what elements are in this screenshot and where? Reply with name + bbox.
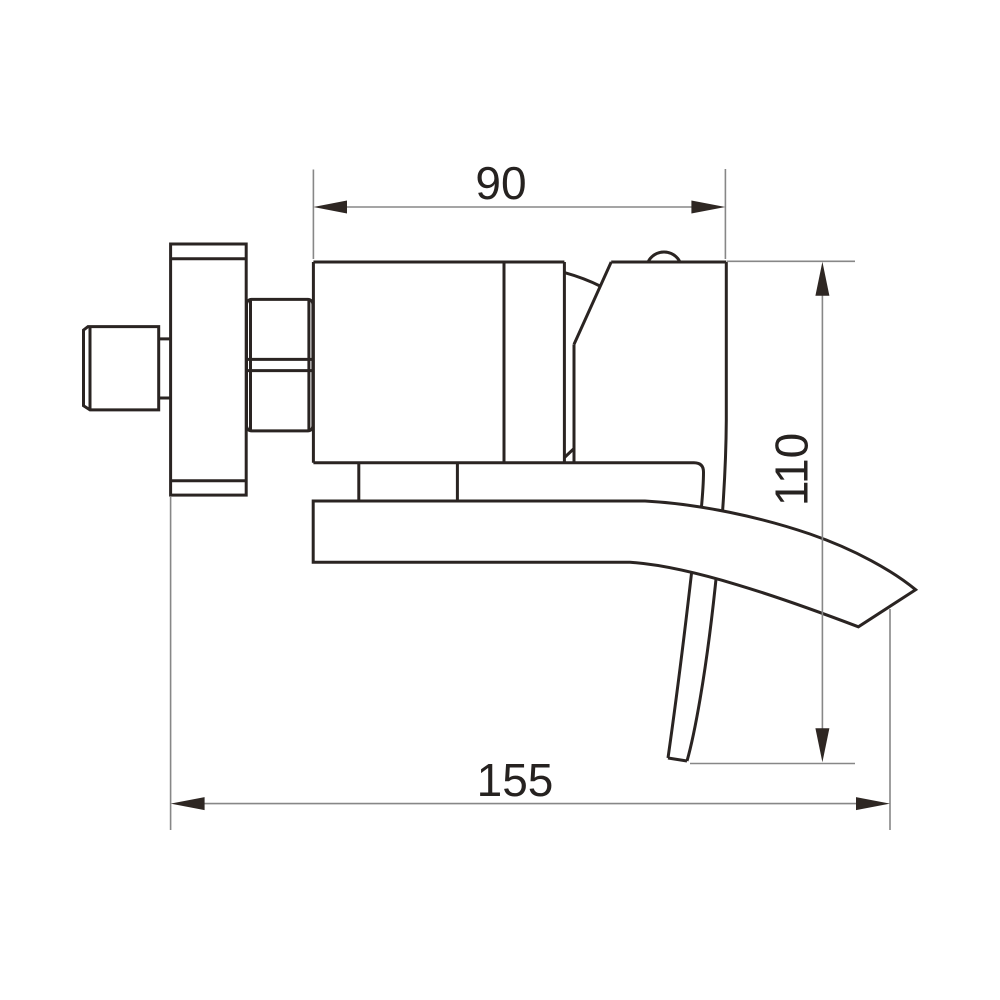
svg-text:90: 90	[475, 157, 526, 209]
svg-text:155: 155	[477, 754, 554, 806]
svg-text:110: 110	[766, 433, 818, 506]
